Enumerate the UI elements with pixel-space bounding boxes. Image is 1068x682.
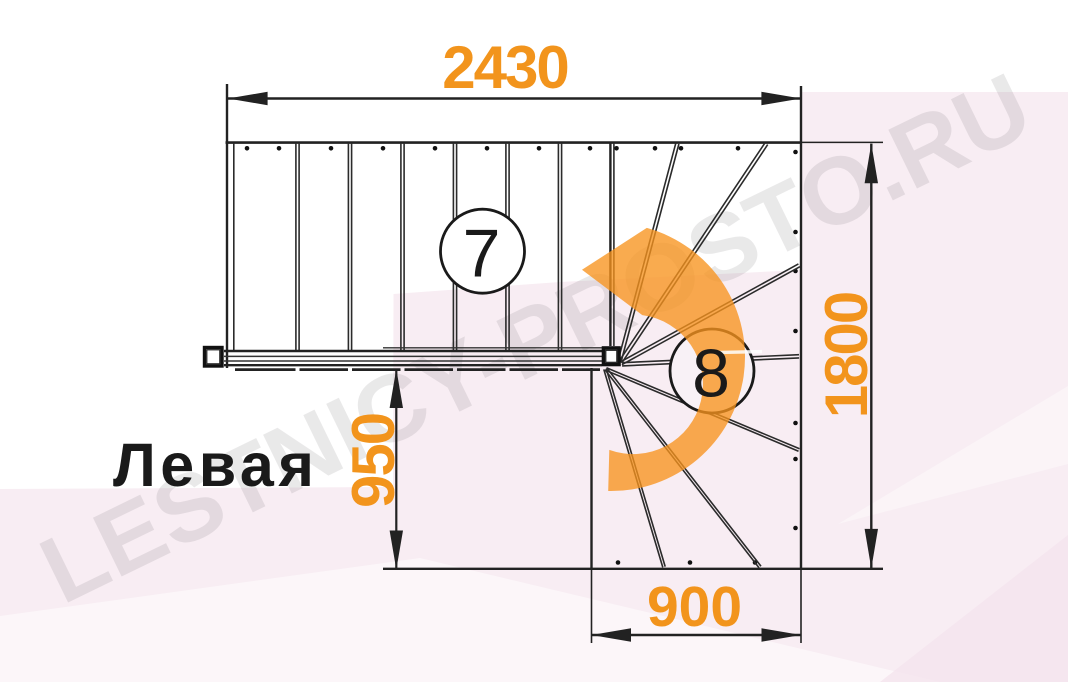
svg-text:1800: 1800 — [813, 293, 880, 418]
svg-text:8: 8 — [692, 335, 730, 411]
svg-text:2430: 2430 — [442, 34, 567, 101]
svg-text:900: 900 — [647, 575, 742, 639]
svg-text:7: 7 — [463, 216, 501, 292]
svg-text:Левая: Левая — [113, 431, 318, 499]
svg-text:950: 950 — [340, 414, 407, 508]
